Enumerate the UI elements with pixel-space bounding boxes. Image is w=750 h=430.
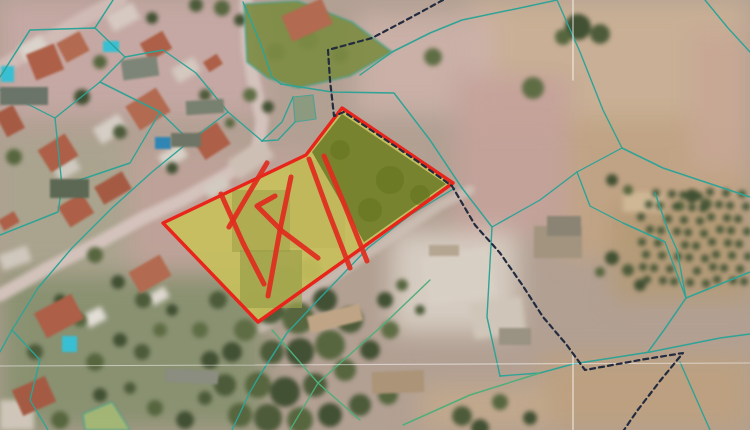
orchard-tree xyxy=(742,203,750,211)
orchard-tree xyxy=(700,230,708,238)
orchard-tree xyxy=(701,255,709,263)
orchard-tree xyxy=(686,279,694,287)
orchard-tree xyxy=(673,228,681,236)
orchard-tree xyxy=(707,213,715,221)
orchard-tree xyxy=(679,191,687,199)
orchard-tree xyxy=(637,213,645,221)
orchard-tree xyxy=(650,264,658,272)
orchard-tree xyxy=(724,239,732,247)
orchard-tree xyxy=(693,267,701,275)
orchard-tree xyxy=(706,188,714,196)
orchard-tree xyxy=(713,276,721,284)
orchard-tree xyxy=(659,277,667,285)
orchard-tree xyxy=(736,265,744,273)
orchard-tree xyxy=(734,215,742,223)
orchard-tree xyxy=(728,252,736,260)
orchard-tree xyxy=(696,217,704,225)
orchard-tree xyxy=(658,252,666,260)
orchard-tree xyxy=(646,226,654,234)
orchard-tree xyxy=(688,204,696,212)
orchard-tree xyxy=(716,226,724,234)
orchard-tree xyxy=(720,264,728,272)
orchard-tree xyxy=(638,238,646,246)
orchard-tree xyxy=(670,278,678,286)
orchard-tree xyxy=(740,278,748,286)
orchard-tree xyxy=(709,263,717,271)
orchard-tree xyxy=(726,202,734,210)
orchard-tree xyxy=(723,214,731,222)
orchard-tree xyxy=(727,227,735,235)
orchard-tree xyxy=(692,242,700,250)
orchard-tree xyxy=(672,203,680,211)
orchard-tree xyxy=(681,241,689,249)
orchard-tree xyxy=(680,216,688,224)
orchard-tree xyxy=(684,229,692,237)
orchard-tree xyxy=(735,240,743,248)
orchard-tree xyxy=(715,201,723,209)
map-canvas xyxy=(0,0,750,430)
orchard-tree xyxy=(643,276,651,284)
orchard-tree xyxy=(699,205,707,213)
orchard-tree xyxy=(668,190,676,198)
orchard-tree xyxy=(645,201,653,209)
orchard-tree xyxy=(639,263,647,271)
orchard-tree xyxy=(695,192,703,200)
satellite-map-view xyxy=(0,0,750,430)
orchard-tree xyxy=(642,251,650,259)
orchard-tree xyxy=(708,238,716,246)
orchard-tree xyxy=(702,280,710,288)
orchard-tree xyxy=(712,251,720,259)
orchard-tree xyxy=(666,265,674,273)
orchard-tree xyxy=(657,227,665,235)
orchard-tree xyxy=(685,254,693,262)
